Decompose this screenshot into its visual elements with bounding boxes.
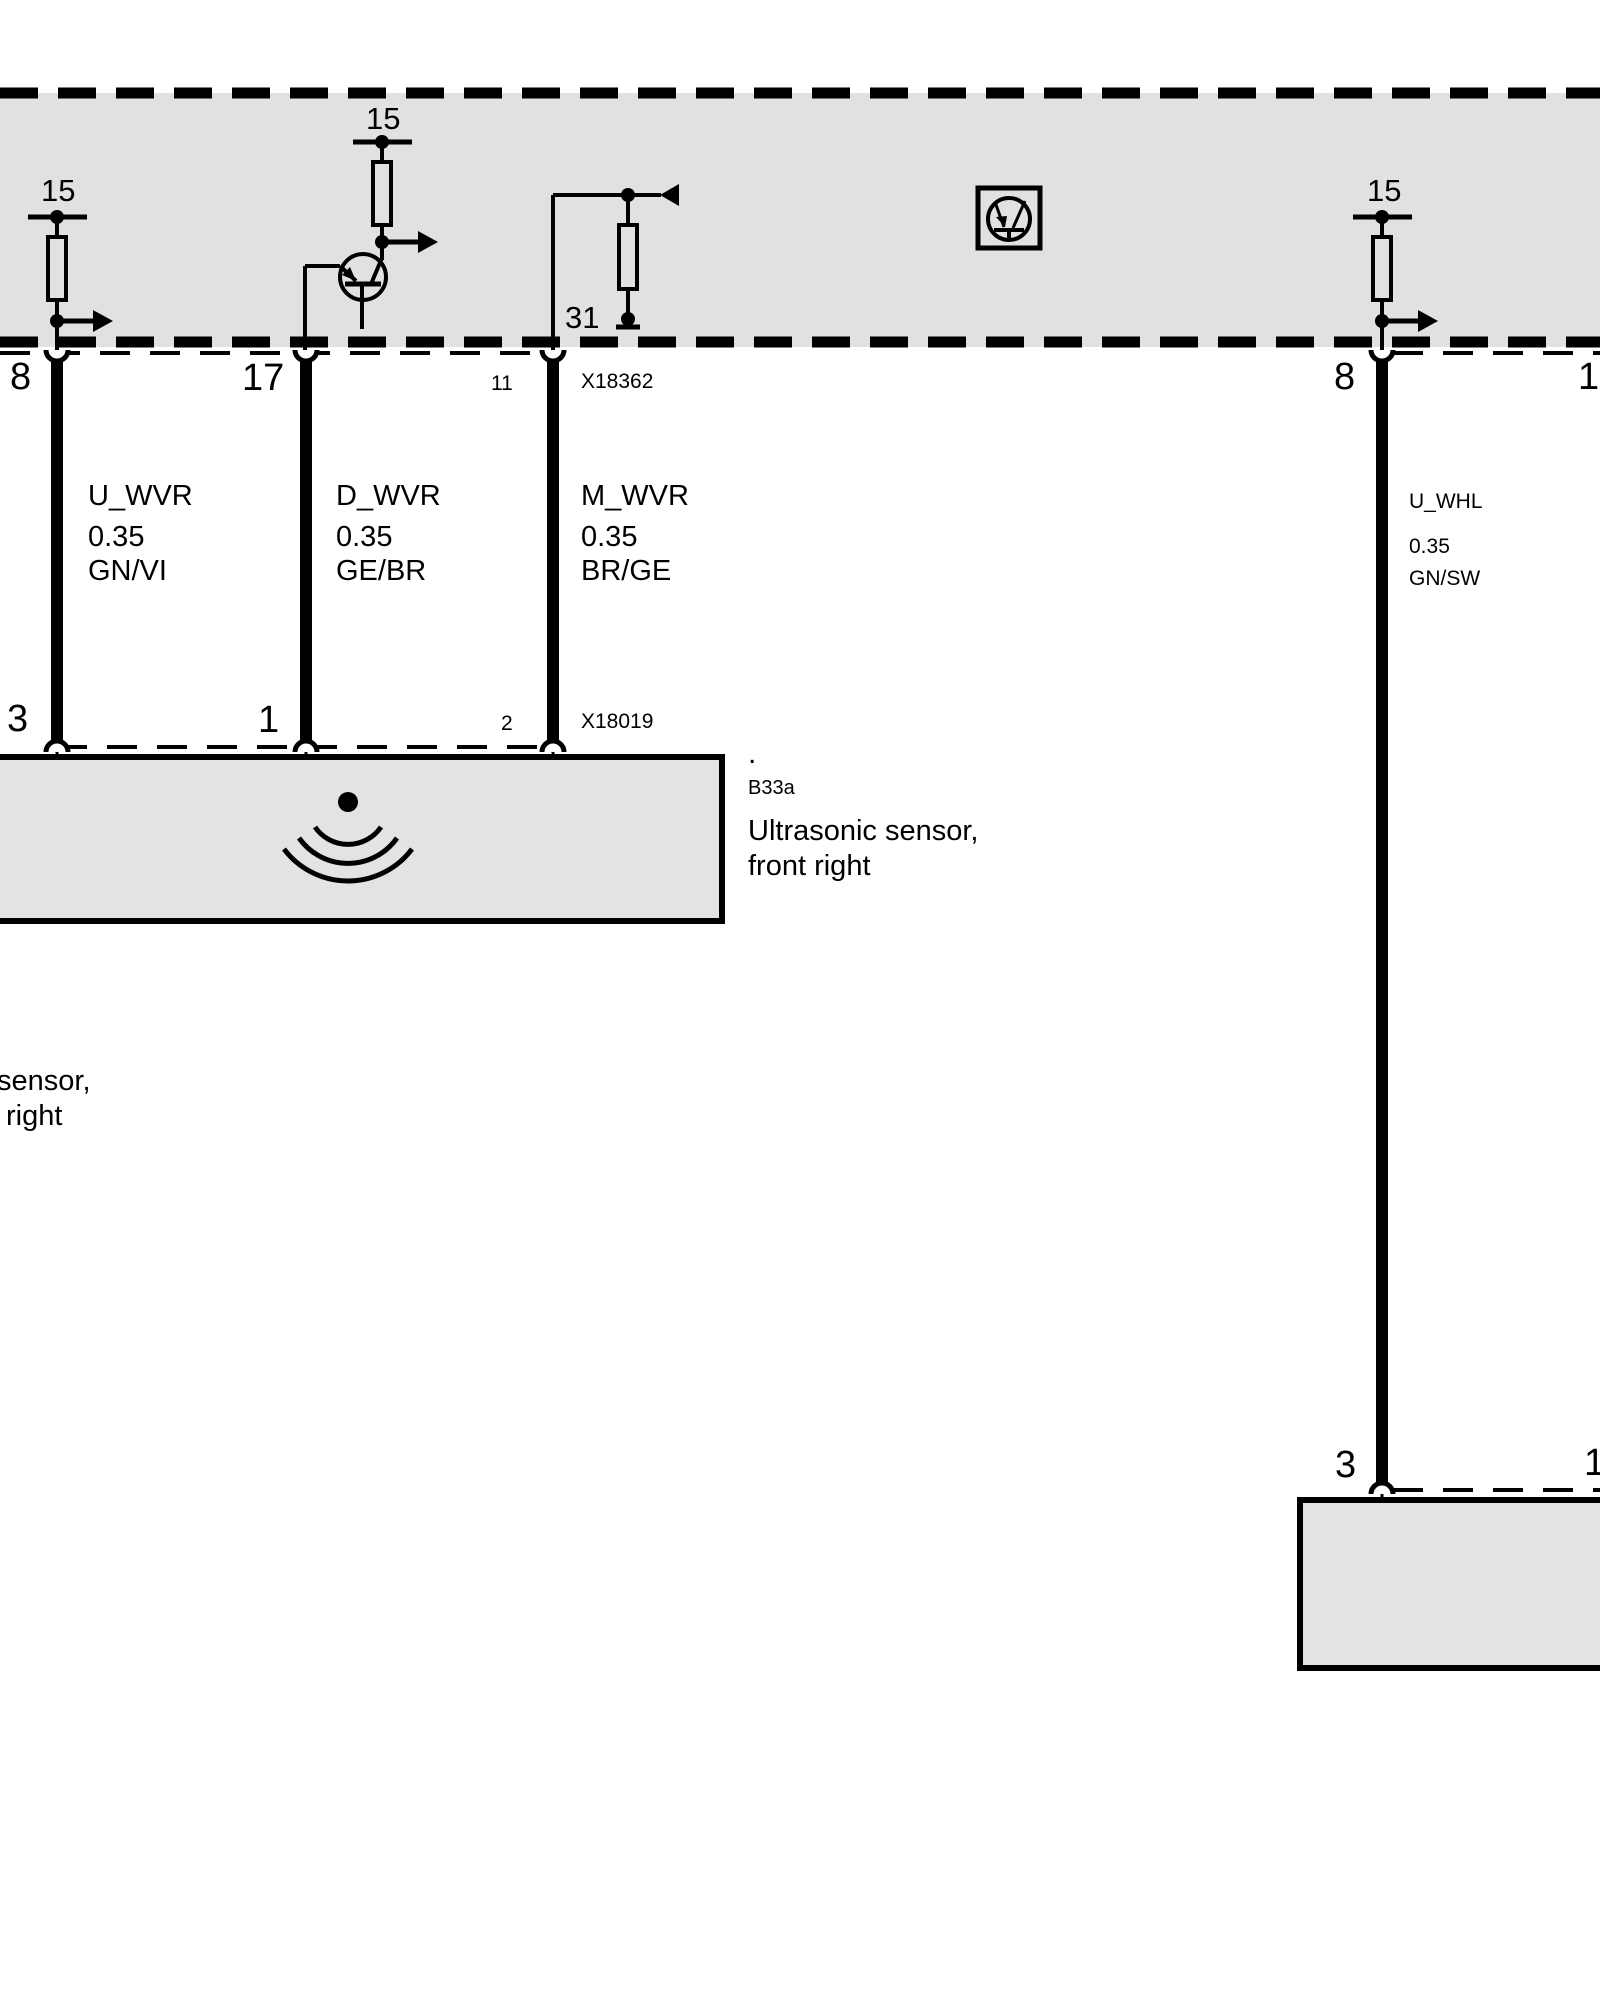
diagram-artwork <box>0 0 1600 2000</box>
wire-size-label: 0.35 <box>581 523 637 552</box>
wiring-diagram-page: 15 15 15 31 8 17 11 X18362 U_WVR 0.35 GN… <box>0 0 1600 2000</box>
connector-id: X18362 <box>581 371 653 392</box>
component-name: front right <box>748 852 871 881</box>
wire-color-label: GE/BR <box>336 557 426 586</box>
pin-number: 1 <box>1584 1444 1600 1482</box>
pin-number: 2 <box>501 713 513 734</box>
terminal-15-label: 15 <box>1367 175 1401 206</box>
sensor-box-bottom-right <box>1300 1500 1600 1668</box>
control-module-band <box>0 93 1600 347</box>
pin-number: 17 <box>1578 358 1600 396</box>
pin-number: 3 <box>1335 1446 1356 1484</box>
wire-signal-label: D_WVR <box>336 482 441 511</box>
pin-number: 8 <box>1334 358 1355 396</box>
terminal-31-label: 31 <box>565 302 599 333</box>
connector-id: X18019 <box>581 711 653 732</box>
note-dot: . <box>748 739 756 769</box>
wire-size-label: 0.35 <box>336 523 392 552</box>
pin-number: 8 <box>10 358 31 396</box>
wire-size-label: 0.35 <box>88 523 144 552</box>
wire-color-label: GN/VI <box>88 557 167 586</box>
pin-number: 11 <box>491 373 513 394</box>
ultrasonic-sensor-box <box>0 757 722 921</box>
wire-color-label: BR/GE <box>581 557 671 586</box>
pin-number: 17 <box>242 359 284 397</box>
clipped-component-name: right <box>6 1102 62 1131</box>
terminal-15-label: 15 <box>41 175 75 206</box>
wire-size-label: 0.35 <box>1409 536 1450 557</box>
component-code: B33a <box>748 778 795 798</box>
wire-color-label: GN/SW <box>1409 568 1480 589</box>
component-name: Ultrasonic sensor, <box>748 817 979 846</box>
wire-signal-label: M_WVR <box>581 482 689 511</box>
pin-number: 3 <box>7 700 28 738</box>
terminal-15-label: 15 <box>366 103 400 134</box>
wire-signal-label: U_WVR <box>88 482 193 511</box>
wire-signal-label: U_WHL <box>1409 491 1483 512</box>
clipped-component-name: sensor, <box>0 1067 91 1096</box>
pin-number: 1 <box>258 701 279 739</box>
